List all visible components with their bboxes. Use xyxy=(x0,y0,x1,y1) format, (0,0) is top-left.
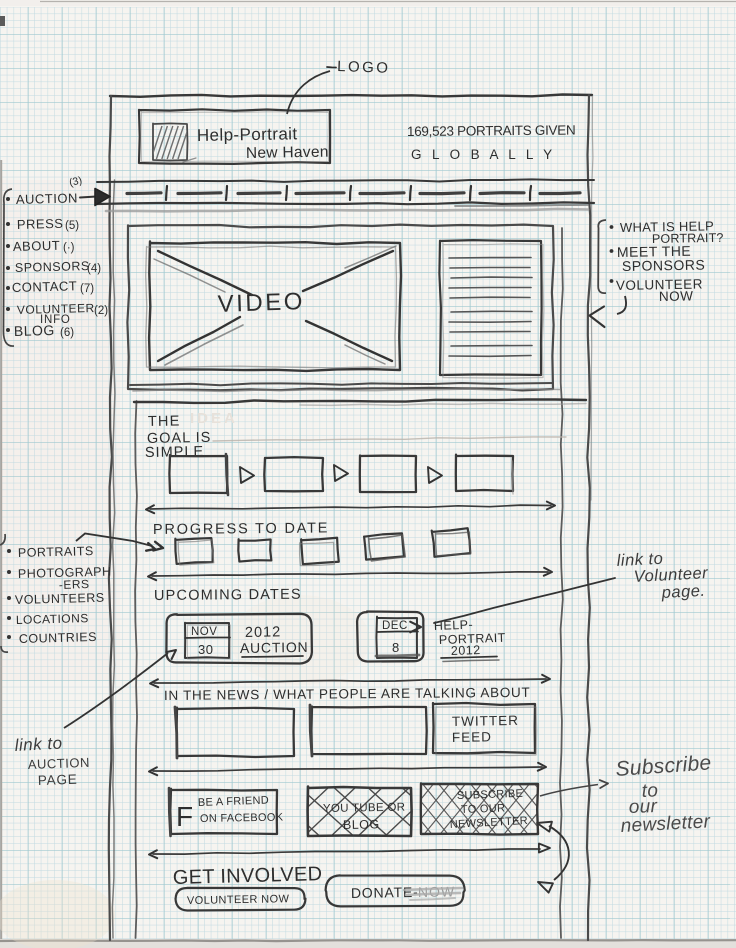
svg-text:LOGO: LOGO xyxy=(337,58,391,77)
svg-text:PRESS: PRESS xyxy=(17,216,64,232)
svg-text:(4): (4) xyxy=(87,263,101,275)
svg-text:ABOUT: ABOUT xyxy=(13,238,61,254)
svg-text:2012: 2012 xyxy=(451,643,481,658)
svg-text:GET INVOLVED: GET INVOLVED xyxy=(173,863,323,889)
svg-text:DONATE-: DONATE- xyxy=(351,884,419,901)
svg-text:PROGRESS TO DATE: PROGRESS TO DATE xyxy=(153,520,329,538)
svg-text:SPONSORS: SPONSORS xyxy=(15,259,90,275)
svg-text:IDEA: IDEA xyxy=(190,410,238,427)
svg-text:New Haven: New Haven xyxy=(246,144,329,162)
svg-text:(6): (6) xyxy=(60,327,74,339)
svg-text:PORTRAITS: PORTRAITS xyxy=(18,544,94,560)
svg-text:8: 8 xyxy=(392,640,400,655)
svg-text:CONTACT: CONTACT xyxy=(12,278,78,295)
svg-text:SPONSORS: SPONSORS xyxy=(622,257,706,274)
svg-text:F: F xyxy=(176,801,193,832)
svg-text:SIMPLE: SIMPLE xyxy=(145,444,204,461)
svg-text:link to: link to xyxy=(14,734,63,755)
svg-text:(7): (7) xyxy=(80,283,94,295)
svg-text:AUCTION: AUCTION xyxy=(28,755,90,772)
svg-text:TO OUR: TO OUR xyxy=(461,802,506,816)
svg-text:(5): (5) xyxy=(65,220,79,232)
svg-text:VIDEO: VIDEO xyxy=(217,288,305,318)
svg-text:PAGE: PAGE xyxy=(38,772,78,788)
svg-text:NOV: NOV xyxy=(191,626,217,638)
svg-text:THE: THE xyxy=(148,413,181,430)
svg-text:AUCTION: AUCTION xyxy=(16,190,78,207)
svg-text:LOCATIONS: LOCATIONS xyxy=(16,611,89,627)
svg-text:169,523 PORTRAITS GIVEN: 169,523 PORTRAITS GIVEN xyxy=(407,123,576,139)
svg-text:SUBSCRIBE: SUBSCRIBE xyxy=(457,788,524,802)
svg-text:NOW: NOW xyxy=(659,288,694,304)
svg-text:Help-Portrait: Help-Portrait xyxy=(197,124,298,145)
svg-text:BE A FRIEND: BE A FRIEND xyxy=(198,795,270,809)
svg-text:COUNTRIES: COUNTRIES xyxy=(19,630,97,646)
svg-text:-ERS: -ERS xyxy=(59,577,90,592)
svg-text:HELP-: HELP- xyxy=(434,618,474,633)
svg-text:page.: page. xyxy=(660,582,706,602)
svg-text:G L O B A L L Y: G L O B A L L Y xyxy=(411,147,556,162)
svg-text:DEC: DEC xyxy=(382,620,408,632)
svg-text:UPCOMING DATES: UPCOMING DATES xyxy=(154,587,302,604)
svg-text:30: 30 xyxy=(198,642,213,657)
svg-text:(·): (·) xyxy=(63,242,75,254)
svg-text:YOU TUBE OR: YOU TUBE OR xyxy=(323,802,406,815)
svg-text:(2): (2) xyxy=(94,305,108,317)
svg-text:VOLUNTEERS: VOLUNTEERS xyxy=(15,591,105,607)
svg-text:AUCTION: AUCTION xyxy=(240,639,309,656)
svg-text:BLOG: BLOG xyxy=(343,817,380,832)
svg-text:IN THE NEWS / WHAT PEOPLE ARE: IN THE NEWS / WHAT PEOPLE ARE TALKING AB… xyxy=(164,685,531,703)
svg-text:INFO: INFO xyxy=(40,314,71,326)
svg-text:TWITTER: TWITTER xyxy=(452,713,519,729)
svg-text:FEED: FEED xyxy=(452,729,492,745)
svg-text:VOLUNTEER NOW: VOLUNTEER NOW xyxy=(187,893,290,907)
svg-text:ON FACEBOOK: ON FACEBOOK xyxy=(200,812,284,825)
